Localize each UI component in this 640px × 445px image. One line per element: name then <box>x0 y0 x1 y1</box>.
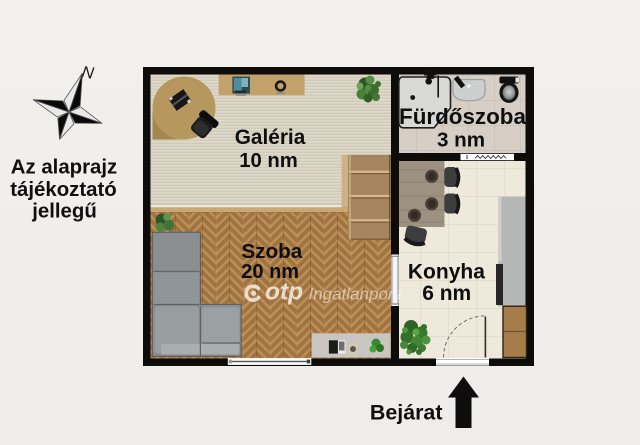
svg-text:10 nm: 10 nm <box>239 150 298 172</box>
svg-text:Bejárat: Bejárat <box>370 401 443 425</box>
svg-text:3 nm: 3 nm <box>437 129 485 152</box>
svg-text:20 nm: 20 nm <box>241 261 299 283</box>
svg-text:jellegű: jellegű <box>31 200 97 222</box>
svg-text:Szoba: Szoba <box>241 240 302 263</box>
svg-text:Galéria: Galéria <box>235 126 306 149</box>
svg-text:Konyha: Konyha <box>408 260 485 283</box>
svg-text:Ingatlanpont: Ingatlanpont <box>309 285 404 304</box>
svg-text:Fürdőszoba: Fürdőszoba <box>399 104 526 129</box>
svg-text:Az alaprajz: Az alaprajz <box>11 156 118 178</box>
svg-text:tájékoztató: tájékoztató <box>10 179 117 201</box>
svg-text:6 nm: 6 nm <box>422 282 471 305</box>
